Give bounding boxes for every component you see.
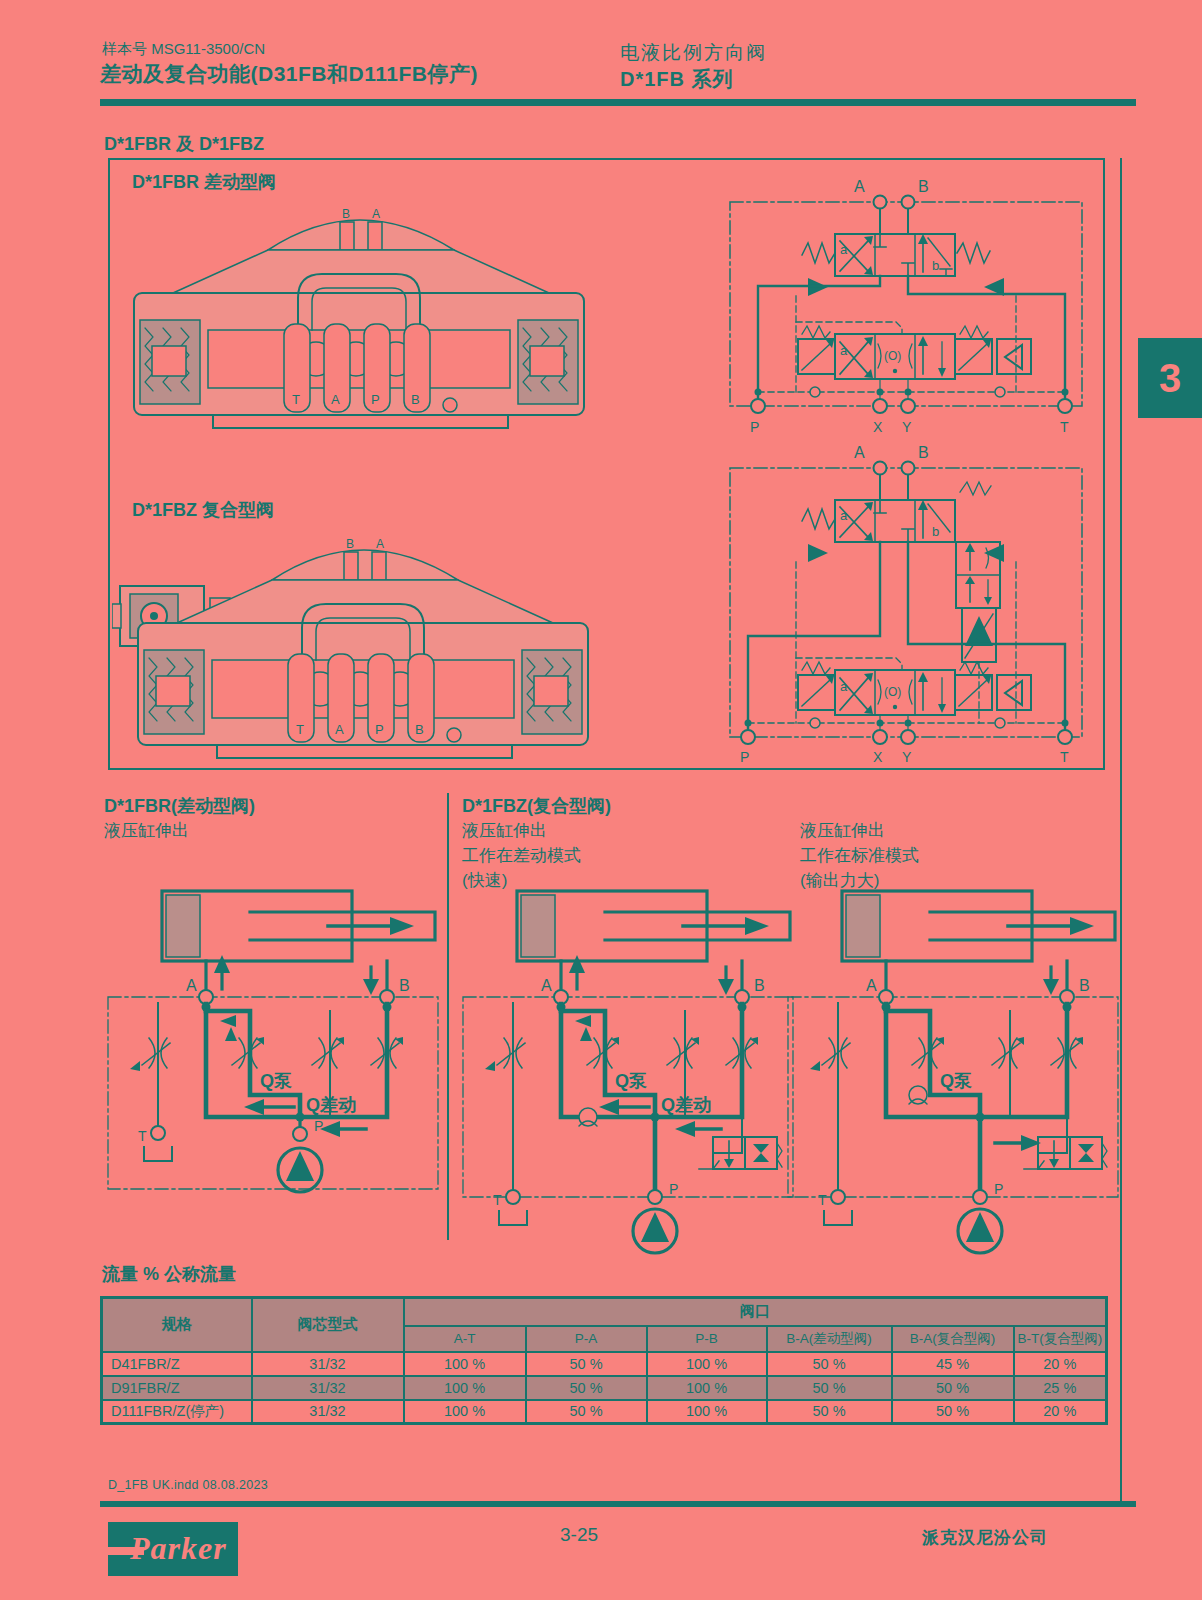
throttle-valves <box>485 1037 758 1071</box>
circuit1-title: D*1FBR(差动型阀) <box>104 794 255 818</box>
table-row: D111FBR/Z(停产) 31/32 100 % 50 % 100 % 50 … <box>102 1400 1107 1424</box>
col-spec-header: 规格 <box>102 1298 252 1352</box>
catalog-page: { "header": { "doc_number": "样本号 MSG11-3… <box>0 0 1202 1600</box>
cell-value: 25 % <box>1014 1376 1107 1400</box>
svg-text:Y: Y <box>902 419 912 435</box>
right-spring-chamber <box>518 320 578 404</box>
parker-logo-text: Parker <box>130 1530 227 1567</box>
svg-text:B: B <box>346 537 354 551</box>
svg-text:T: T <box>818 1192 827 1208</box>
cell-spec: D41FBR/Z <box>102 1352 252 1376</box>
svg-text:T: T <box>493 1192 502 1208</box>
col-header: B-A(复合型阀) <box>892 1326 1014 1352</box>
cell-value: 20 % <box>1014 1400 1107 1424</box>
svg-text:B: B <box>411 392 420 407</box>
throttle-valves <box>810 1037 1083 1071</box>
svg-text:T: T <box>1060 419 1069 435</box>
svg-text:T: T <box>138 1128 147 1144</box>
cell-value: 100 % <box>647 1376 767 1400</box>
cell-value: 50 % <box>767 1376 892 1400</box>
schematic-fbz: A B a b a <box>710 440 1102 770</box>
valve-cross-section-fbz: B A T A P <box>112 528 604 768</box>
cell-value: 50 % <box>767 1352 892 1376</box>
svg-text:Y: Y <box>902 749 912 765</box>
pilot-valve: a (O) <box>798 662 1031 715</box>
circuit3-line: 液压缸伸出 <box>800 818 885 843</box>
cell-value: 100 % <box>647 1400 767 1424</box>
cylinder <box>517 891 790 961</box>
circuit-fbz-standard: A B Q泵 T P <box>780 885 1125 1257</box>
chapter-tab: 3 <box>1138 338 1202 418</box>
svg-text:A: A <box>376 537 384 551</box>
parker-logo: Parker <box>108 1522 238 1576</box>
bypass-solenoid-valve <box>699 1117 782 1169</box>
file-info: D_1FB UK.indd 08.08.2023 <box>108 1478 268 1492</box>
svg-text:Q差动: Q差动 <box>661 1095 711 1115</box>
flow-table: 规格 阀芯型式 阀口 A-T P-A P-B B-A(差动型阀) B-A(复合型… <box>100 1296 1108 1425</box>
cell-spool: 31/32 <box>252 1400 404 1424</box>
cell-value: 50 % <box>892 1376 1014 1400</box>
circuit-fbz-differential: A B Q泵 Q差动 T P <box>455 885 800 1257</box>
col-header: B-A(差动型阀) <box>767 1326 892 1352</box>
page-edge-line <box>1120 158 1122 1502</box>
column-divider <box>447 793 449 1240</box>
schematic-fbr: A B a b a (O) <box>710 174 1102 438</box>
svg-text:P: P <box>750 419 759 435</box>
svg-text:X: X <box>873 749 883 765</box>
col-ports-group-header: 阀口 <box>404 1298 1107 1326</box>
left-spring-chamber <box>140 320 200 404</box>
svg-text:b: b <box>932 258 939 273</box>
left-solenoid <box>798 326 835 374</box>
cell-value: 45 % <box>892 1352 1014 1376</box>
svg-text:P: P <box>371 392 380 407</box>
cell-value: 20 % <box>1014 1352 1107 1376</box>
cell-value: 100 % <box>404 1376 526 1400</box>
svg-text:P: P <box>740 749 749 765</box>
col-header: P-B <box>647 1326 767 1352</box>
circuit2-line: 液压缸伸出 <box>462 818 547 843</box>
cell-value: 100 % <box>404 1400 526 1424</box>
circuit2-title: D*1FBZ(复合型阀) <box>462 794 611 818</box>
svg-text:B: B <box>754 977 765 994</box>
header-rule <box>100 99 1136 106</box>
svg-text:T: T <box>296 722 304 737</box>
cell-spool: 31/32 <box>252 1352 404 1376</box>
valve-cross-section-fbr: B A T A P <box>118 198 600 434</box>
svg-text:T: T <box>1060 749 1069 765</box>
valve-body: B A T A P <box>134 207 584 428</box>
cell-value: 100 % <box>647 1352 767 1376</box>
circuit2-line: 工作在差动模式 <box>462 843 581 868</box>
product-line-1: 电液比例方向阀 <box>620 40 767 66</box>
svg-text:Q泵: Q泵 <box>615 1071 647 1091</box>
svg-text:(O): (O) <box>884 685 901 699</box>
table-row: D91FBR/Z 31/32 100 % 50 % 100 % 50 % 50 … <box>102 1376 1107 1400</box>
col-spool-header: 阀芯型式 <box>252 1298 404 1352</box>
svg-text:B: B <box>415 722 424 737</box>
pilot-valve: a (O) <box>798 326 1031 379</box>
svg-text:B: B <box>1079 977 1090 994</box>
cell-value: 50 % <box>767 1400 892 1424</box>
svg-text:B: B <box>918 178 929 195</box>
svg-text:b: b <box>932 524 939 539</box>
circuit3-line: 工作在标准模式 <box>800 843 919 868</box>
cell-value: 50 % <box>892 1400 1014 1424</box>
fbr-label: D*1FBR 差动型阀 <box>132 170 276 194</box>
cell-spec: D111FBR/Z(停产) <box>102 1400 252 1424</box>
circuit-fbr: A B Q泵 Q差动 T P <box>100 885 445 1203</box>
svg-text:A: A <box>186 977 197 994</box>
svg-text:A: A <box>335 722 344 737</box>
right-solenoid <box>955 326 1031 374</box>
footer-rule <box>100 1501 1136 1507</box>
cell-value: 50 % <box>526 1376 647 1400</box>
svg-text:A: A <box>854 178 865 195</box>
cell-value: 50 % <box>526 1400 647 1424</box>
col-header: P-A <box>526 1326 647 1352</box>
svg-text:(O): (O) <box>884 349 901 363</box>
product-line-2: D*1FB 系列 <box>620 66 734 93</box>
table-header-row: 规格 阀芯型式 阀口 <box>102 1298 1107 1326</box>
fbz-label: D*1FBZ 复合型阀 <box>132 498 274 522</box>
svg-text:B: B <box>918 444 929 461</box>
right-solenoid <box>955 662 1031 710</box>
valve-body: B A T A P <box>138 537 588 758</box>
cell-value: 50 % <box>526 1352 647 1376</box>
svg-text:T: T <box>292 392 300 407</box>
svg-text:P: P <box>314 1118 323 1134</box>
svg-text:Q泵: Q泵 <box>940 1071 972 1091</box>
company-name: 派克汉尼汾公司 <box>922 1526 1048 1549</box>
right-spring-chamber <box>522 650 582 734</box>
svg-text:Q差动: Q差动 <box>306 1095 356 1115</box>
col-header: B-T(复合型阀) <box>1014 1326 1107 1352</box>
doc-number: 样本号 MSG11-3500/CN <box>102 40 265 59</box>
flow-table-title: 流量 % 公称流量 <box>102 1262 236 1286</box>
left-spring-chamber <box>144 650 204 734</box>
svg-text:A: A <box>866 977 877 994</box>
svg-text:X: X <box>873 419 883 435</box>
svg-text:B: B <box>399 977 410 994</box>
cylinder <box>842 891 1115 961</box>
page-number: 3-25 <box>560 1524 598 1546</box>
svg-text:A: A <box>854 444 865 461</box>
cell-spool: 31/32 <box>252 1376 404 1400</box>
svg-text:A: A <box>541 977 552 994</box>
cell-spec: D91FBR/Z <box>102 1376 252 1400</box>
cylinder <box>162 891 435 961</box>
svg-text:P: P <box>669 1181 678 1197</box>
svg-text:P: P <box>994 1181 1003 1197</box>
left-solenoid <box>798 662 835 710</box>
page-title: 差动及复合功能(D31FB和D111FB停产) <box>100 60 478 88</box>
svg-text:Q泵: Q泵 <box>260 1071 292 1091</box>
svg-text:P: P <box>375 722 384 737</box>
svg-text:B: B <box>342 207 350 221</box>
cell-value: 100 % <box>404 1352 526 1376</box>
section-title: D*1FBR 及 D*1FBZ <box>104 132 264 156</box>
circuit1-line: 液压缸伸出 <box>104 818 189 843</box>
throttle-valves <box>130 1037 403 1071</box>
svg-text:A: A <box>372 207 380 221</box>
col-header: A-T <box>404 1326 526 1352</box>
svg-text:A: A <box>331 392 340 407</box>
table-row: D41FBR/Z 31/32 100 % 50 % 100 % 50 % 45 … <box>102 1352 1107 1376</box>
